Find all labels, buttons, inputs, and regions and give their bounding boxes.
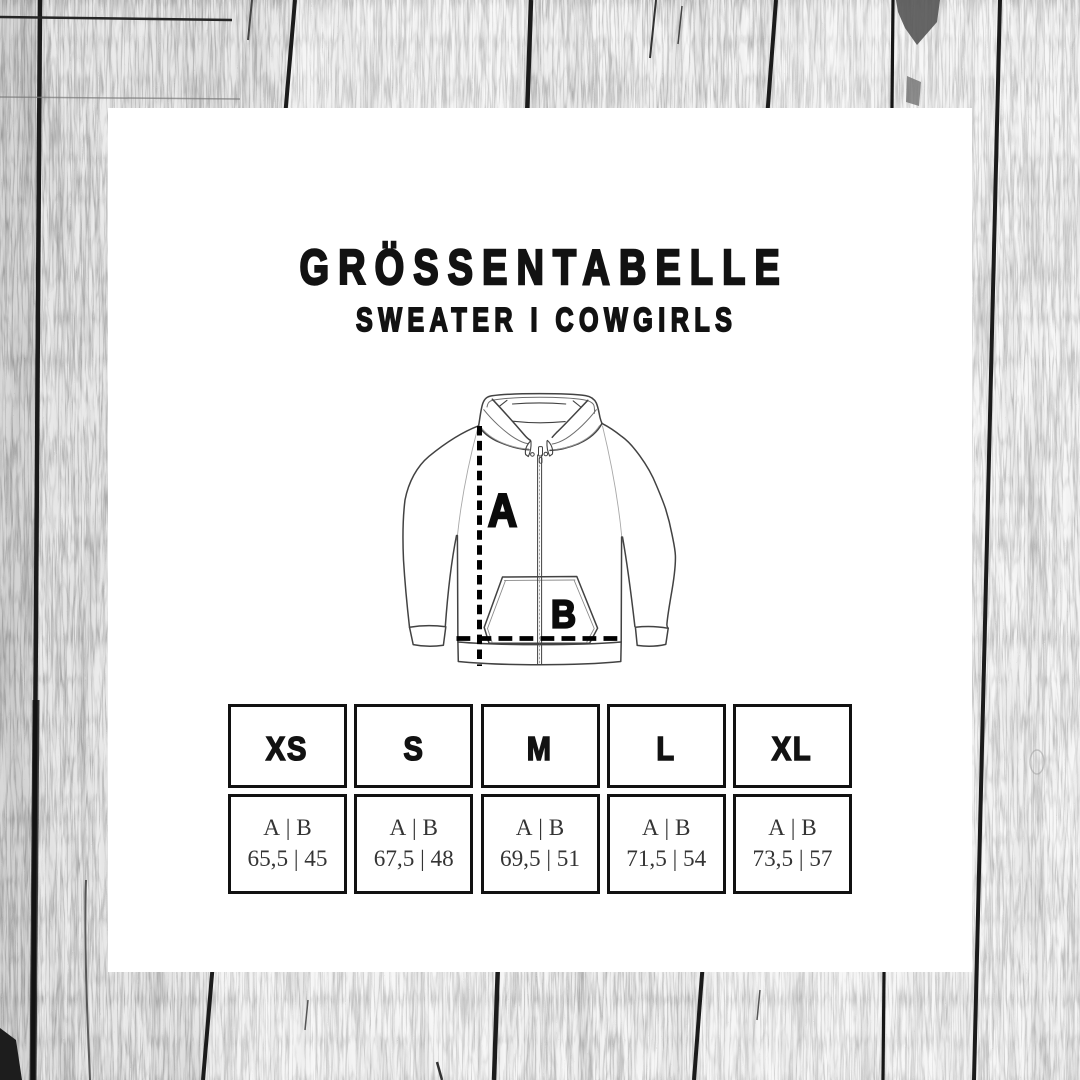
svg-text:B: B — [551, 594, 576, 637]
svg-text:A: A — [488, 484, 517, 536]
